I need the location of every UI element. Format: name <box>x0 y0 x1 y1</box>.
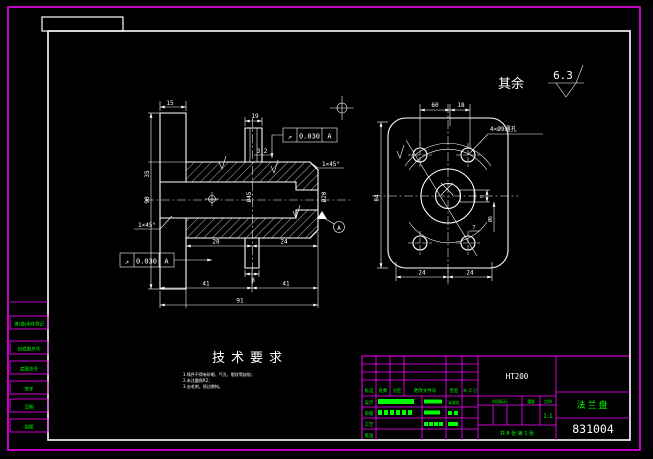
dim-28: 28 <box>212 239 220 246</box>
stage-label: 阶段标记 <box>492 399 507 404</box>
dim-8: 8 <box>251 277 255 284</box>
dim-41: 41 <box>282 281 290 288</box>
dim-24: 24 <box>280 239 288 246</box>
snap-marker-icon <box>441 183 453 195</box>
datum-letter: A <box>337 225 341 232</box>
rev-header: 标记 <box>365 387 374 394</box>
tolerance-frame: ↗ 0.030 A <box>120 253 212 267</box>
chamfer-note: 1×45° <box>138 222 156 229</box>
bottom-boss <box>245 238 259 268</box>
margin-strip: 借(通)用件登记 旧底图总号 底图总号 签字 日期 描图 <box>10 302 48 432</box>
tolerance-symbol: ↗ <box>125 258 129 266</box>
tolerance-frame: ↗ 0.030 A <box>272 128 337 158</box>
margin-label: 底图总号 <box>20 366 38 373</box>
margin-label: 描图 <box>25 424 34 431</box>
tech-req-line: 3.去毛刺，锐边倒钝。 <box>183 383 223 389</box>
title-block: 标记 处数 分区 更改文件号 签名 年 月 日 设计 审核 工艺 批准 标准化 <box>362 356 630 440</box>
tech-req-title: 技术要求 <box>212 351 288 366</box>
tolerance-datum: A <box>327 133 332 141</box>
section-hatch-bottom <box>186 210 318 238</box>
tech-req-line: 1.铸件不得有砂眼、气孔、裂纹等缺陷； <box>183 371 255 377</box>
rev-header: 年 月 日 <box>463 388 477 393</box>
outer-border <box>8 7 640 450</box>
dim-dia20: Ø20 <box>321 191 328 202</box>
margin-label: 旧底图总号 <box>18 346 41 353</box>
bolt-hole <box>456 231 480 255</box>
std-label: 标准化 <box>448 400 460 405</box>
section-hatch-top <box>186 162 318 190</box>
sheet-count: 共 8 张 第 1 张 <box>500 430 534 437</box>
dim-18: 18 <box>457 102 465 109</box>
frame-corner-box <box>42 17 123 31</box>
tolerance-symbol: ↗ <box>288 133 292 141</box>
tech-req-line: 2.未注圆角R2； <box>183 377 212 383</box>
signature-placeholder <box>378 399 414 404</box>
tolerance-value: 0.030 <box>299 133 320 141</box>
right-view: 4×Ø9通孔 60 18 84 24 24 9 Ø6 7 <box>372 102 543 284</box>
rev-header: 分区 <box>393 387 402 394</box>
cad-sheet: 借(通)用件登记 旧底图总号 底图总号 签字 日期 描图 其余 6.3 <box>0 0 653 459</box>
part-outline <box>160 113 318 289</box>
date-placeholder <box>424 422 458 426</box>
role-label: 工艺 <box>365 422 374 428</box>
dim-dia45: Ø45 <box>246 191 253 202</box>
dim-19: 19 <box>251 113 259 120</box>
rev-header: 更改文件号 <box>414 387 437 394</box>
margin-label: 签字 <box>25 386 34 393</box>
rev-header: 处数 <box>379 387 388 394</box>
dim-9: 9 <box>480 195 486 198</box>
dim-dia6: Ø6 <box>487 216 494 222</box>
drawing-number: 831004 <box>572 422 614 436</box>
roughness-icon <box>397 145 404 158</box>
snap-marker-icon <box>205 192 219 206</box>
top-collar <box>245 128 262 162</box>
margin-label: 借(通)用件登记 <box>14 321 44 328</box>
dim-90: 90 <box>144 196 151 204</box>
tolerance-datum: A <box>164 258 169 266</box>
tech-requirements: 技术要求 1.铸件不得有砂眼、气孔、裂纹等缺陷； 2.未注圆角R2； 3.去毛刺… <box>183 351 288 389</box>
chamfer-note: 1×45° <box>322 161 340 168</box>
weight-label: 重量 <box>527 399 535 404</box>
scale-label: 比例 <box>544 399 552 404</box>
material-value: HT200 <box>506 372 529 381</box>
roughness-note-label: 其余 <box>498 76 524 92</box>
dim-35: 35 <box>144 170 151 178</box>
dim-24: 24 <box>418 270 426 277</box>
rev-header: 签名 <box>450 387 459 394</box>
tolerance-value: 0.030 <box>136 258 157 266</box>
sheet-borders <box>8 7 640 450</box>
part-name: 法兰盘 <box>576 399 609 411</box>
margin-label: 日期 <box>25 405 34 411</box>
dim-91: 91 <box>236 298 244 305</box>
dim-41: 41 <box>202 281 210 288</box>
section-trace-line <box>406 140 477 256</box>
dim-60: 60 <box>431 102 439 109</box>
dim-15: 15 <box>166 100 174 107</box>
bolt-hole <box>408 231 432 255</box>
left-view: 3.2 1×45° 1×45° ↗ 0.030 A ↗ 0.030 A <box>120 96 354 308</box>
roughness-value: 3.2 <box>257 148 268 155</box>
role-label: 设计 <box>365 399 374 406</box>
inner-frame <box>48 31 630 440</box>
scale-value: 1:1 <box>543 413 553 420</box>
snap-marker-icon <box>330 96 354 120</box>
dim-24: 24 <box>466 270 474 277</box>
dim-7: 7 <box>472 225 475 231</box>
signature-placeholder <box>424 400 442 404</box>
surface-roughness-note: 其余 6.3 <box>498 65 584 97</box>
dim-84: 84 <box>374 194 381 202</box>
role-label: 审核 <box>365 410 374 417</box>
cad-drawing-canvas: 借(通)用件登记 旧底图总号 底图总号 签字 日期 描图 其余 6.3 <box>0 0 653 459</box>
holes-note: 4×Ø9通孔 <box>490 125 516 133</box>
datum-symbol: A <box>317 211 345 233</box>
roughness-note-value: 6.3 <box>553 69 573 82</box>
role-label: 批准 <box>365 432 374 439</box>
